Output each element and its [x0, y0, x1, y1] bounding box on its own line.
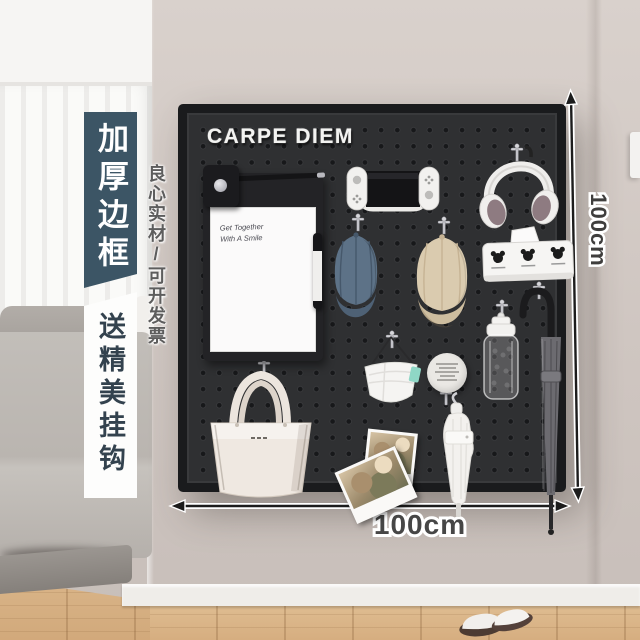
handbag	[199, 361, 323, 501]
face-mask	[355, 331, 427, 419]
umbrella-tip	[549, 495, 553, 529]
umbrella-handle	[523, 291, 551, 337]
board-title: CARPE DIEM	[207, 125, 354, 149]
denim-cap	[325, 225, 387, 337]
whiteboard-sheet: Get Together With A Smile	[210, 207, 316, 352]
height-label: 100cm	[586, 193, 611, 267]
umbrella-band	[445, 431, 473, 444]
handwritten-note: Get Together With A Smile	[220, 219, 311, 245]
note-line2: With A Smile	[220, 231, 310, 245]
ear-cup	[528, 187, 561, 226]
umbrella-body	[444, 413, 474, 506]
umbrella-tie	[541, 371, 561, 382]
clipboard-clip	[203, 165, 239, 207]
left-joycon	[347, 167, 367, 210]
mickey-tissue-box	[483, 227, 575, 285]
white-umbrella	[429, 389, 485, 523]
product-photo: CARPE DIEM Get Together With A Smile	[0, 0, 640, 640]
right-joycon	[419, 167, 439, 210]
game-console	[345, 165, 441, 213]
ear-cup	[477, 192, 510, 231]
gray-umbrella	[509, 283, 561, 559]
marker-pen	[313, 233, 322, 309]
clipboard-whiteboard: Get Together With A Smile	[203, 173, 323, 361]
beige-cap	[405, 227, 479, 341]
bag-brand-mark	[251, 437, 267, 439]
headphone-hanger	[525, 147, 531, 157]
note-disc	[427, 353, 467, 393]
bag-handle	[241, 383, 279, 427]
height-arrow: 100cm	[565, 90, 611, 502]
headphones	[475, 143, 563, 235]
